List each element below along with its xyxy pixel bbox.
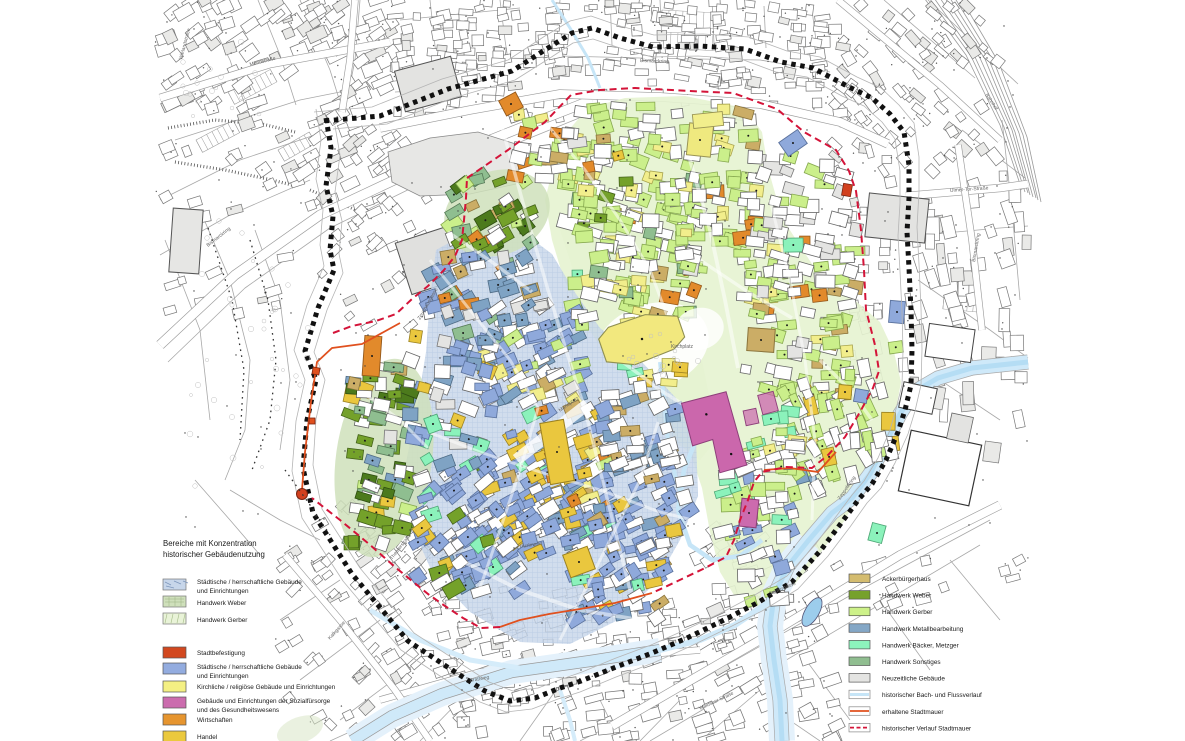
svg-text:Gebäude und Einrichtungen der: Gebäude und Einrichtungen der Sozialfürs… <box>197 698 331 705</box>
svg-text:Kirchplatz: Kirchplatz <box>671 344 693 350</box>
svg-text:Ackerbürgerhaus: Ackerbürgerhaus <box>882 576 931 583</box>
svg-text:Städtische / herrschaftliche G: Städtische / herrschaftliche Gebäude <box>197 579 302 586</box>
svg-text:historischer Bach- und Flussve: historischer Bach- und Flussverlauf <box>882 692 982 699</box>
svg-text:historischer Verlauf Stadtmaue: historischer Verlauf Stadtmauer <box>882 725 972 732</box>
svg-text:Handwerk Gerber: Handwerk Gerber <box>882 609 933 616</box>
svg-text:und Einrichtungen: und Einrichtungen <box>197 588 249 595</box>
svg-text:Städtische / herrschaftliche G: Städtische / herrschaftliche Gebäude <box>197 664 302 671</box>
svg-text:historischer Gebäudenutzung: historischer Gebäudenutzung <box>163 550 265 559</box>
svg-text:Kirchliche / religiöse Gebäude: Kirchliche / religiöse Gebäude und Einri… <box>197 684 336 691</box>
svg-text:Handwerk Weber: Handwerk Weber <box>882 593 932 600</box>
svg-text:und Einrichtungen: und Einrichtungen <box>197 673 249 680</box>
svg-text:Neuzeitliche Gebäude: Neuzeitliche Gebäude <box>882 676 945 683</box>
svg-text:Handwerk Weber: Handwerk Weber <box>197 600 247 607</box>
svg-text:Handwerk Gerber: Handwerk Gerber <box>197 617 248 624</box>
svg-text:Bereiche mit Konzentration: Bereiche mit Konzentration <box>163 539 257 548</box>
svg-text:Handwerk Bäcker, Metzger: Handwerk Bäcker, Metzger <box>882 642 960 649</box>
svg-text:Handwerk Sonstiges: Handwerk Sonstiges <box>882 659 941 666</box>
svg-text:Wirtschaften: Wirtschaften <box>197 717 233 724</box>
svg-text:erhaltene Stadtmauer: erhaltene Stadtmauer <box>882 709 944 716</box>
svg-text:Handel: Handel <box>197 734 217 741</box>
svg-text:Handwerk Metallbearbeitung: Handwerk Metallbearbeitung <box>882 626 964 633</box>
svg-text:Bismarckring: Bismarckring <box>640 58 669 65</box>
svg-text:Stadtbefestigung: Stadtbefestigung <box>197 650 245 657</box>
svg-text:und des Gesundheitswesens: und des Gesundheitswesens <box>197 707 279 714</box>
